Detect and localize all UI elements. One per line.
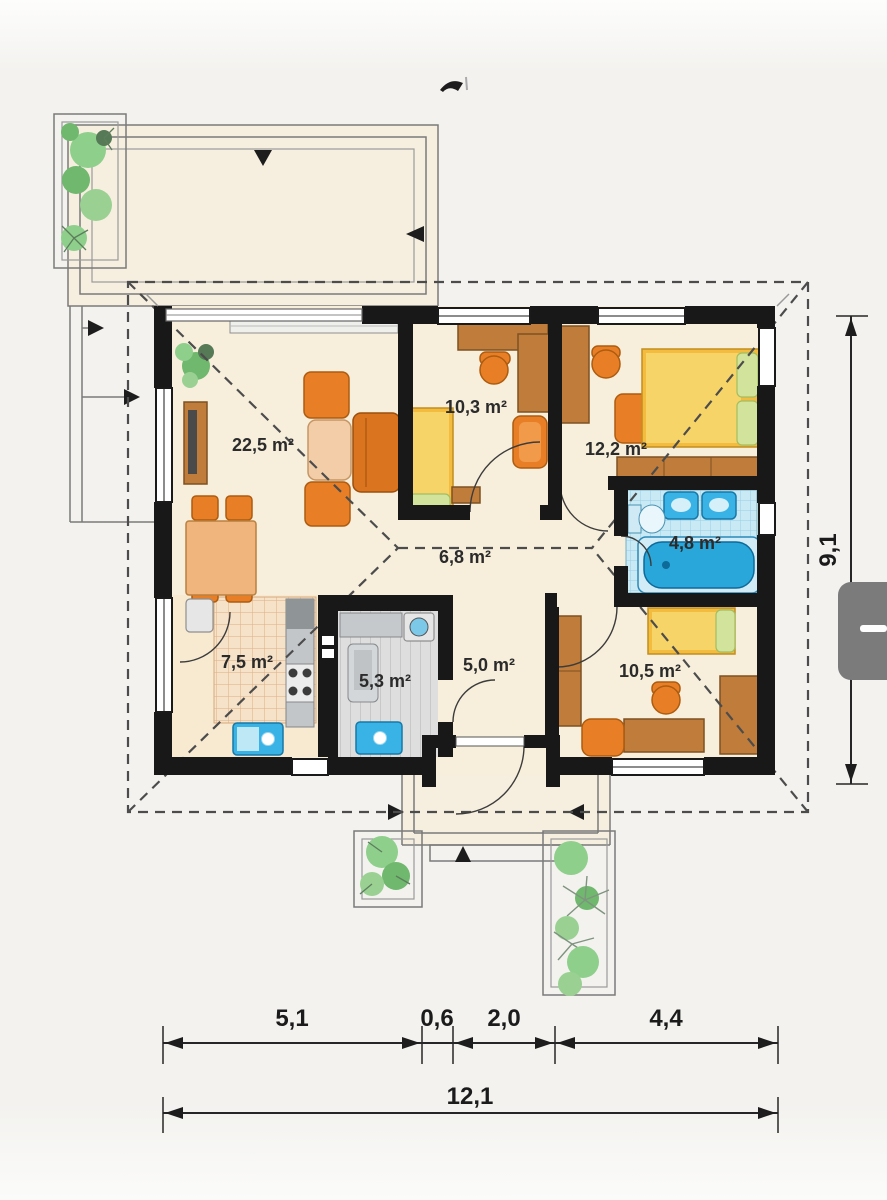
window <box>759 503 775 535</box>
wardrobe <box>518 334 549 412</box>
desk <box>558 326 589 423</box>
desk-chair <box>652 686 680 714</box>
floor-plan-canvas: 22,5 m² 10,3 m² 12,2 m² 6,8 m² 4,8 m² 7,… <box>0 0 887 1200</box>
overlay-handle-button[interactable] <box>838 582 887 680</box>
terrace-deck <box>68 125 438 306</box>
dim-segment-1: 5,1 <box>275 1005 308 1032</box>
dim-height: 9,1 <box>815 533 842 566</box>
slope-arrow-right <box>88 320 104 336</box>
cursor-mark <box>440 77 467 92</box>
desk-chair <box>592 350 620 378</box>
room-label-kitchen: 7,5 m² <box>221 652 273 672</box>
minus-icon <box>860 625 887 632</box>
screenshot-page: 22,5 m² 10,3 m² 12,2 m² 6,8 m² 4,8 m² 7,… <box>0 0 887 1200</box>
step-arrow-up <box>455 846 471 862</box>
entry-threshold <box>456 737 524 746</box>
fridge <box>186 599 213 632</box>
sofa-light <box>308 420 351 480</box>
window <box>759 328 775 386</box>
armchair <box>305 482 350 526</box>
porch-planter-right <box>543 831 615 996</box>
room-label-bedroom: 12,2 m² <box>585 439 647 459</box>
room-label-room-top: 10,3 m² <box>445 397 507 417</box>
dim-segment-3: 2,0 <box>487 1005 520 1032</box>
desk <box>624 719 704 752</box>
cursor-swoosh <box>440 81 463 92</box>
room-label-living: 22,5 m² <box>232 435 294 455</box>
room-label-bathroom: 4,8 m² <box>669 533 721 553</box>
dimension-row-segments: 5,1 0,6 2,0 4,4 <box>163 1005 778 1064</box>
armchair <box>582 719 624 756</box>
sofa <box>353 413 400 492</box>
dim-total-width: 12,1 <box>447 1083 494 1110</box>
dim-segment-2: 0,6 <box>420 1005 453 1032</box>
slope-arrow-right2 <box>124 389 140 405</box>
dim-segment-4: 4,4 <box>649 1005 683 1032</box>
utility-counter <box>340 613 402 637</box>
nightstand <box>452 487 480 503</box>
corner-tick <box>777 294 789 306</box>
room-label-room-bottom: 10,5 m² <box>619 661 681 681</box>
dimension-row-total: 12,1 <box>163 1083 778 1133</box>
desk-chair <box>480 356 508 384</box>
window <box>292 759 328 775</box>
dimension-right: 9,1 <box>815 316 868 784</box>
armchair <box>304 372 349 418</box>
room-label-entry: 5,0 m² <box>463 655 515 675</box>
room-label-utility: 5,3 m² <box>359 671 411 691</box>
room-label-hall: 6,8 m² <box>439 547 491 567</box>
